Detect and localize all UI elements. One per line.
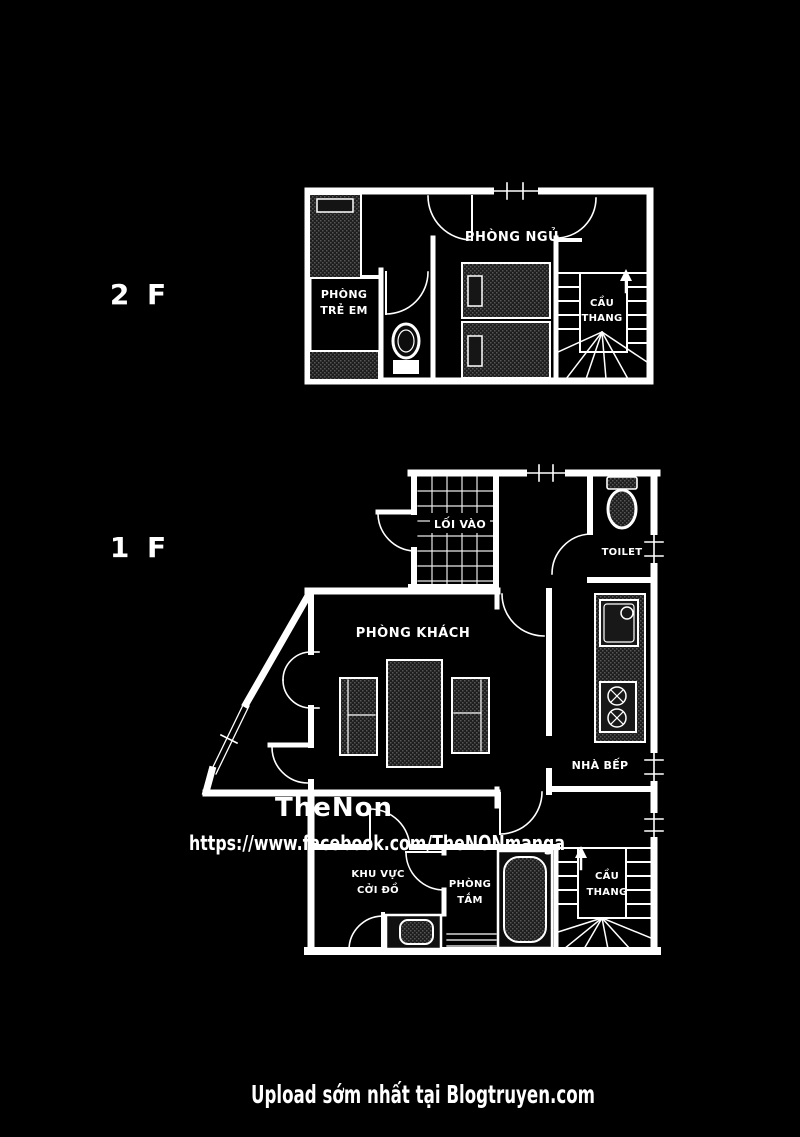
floor2-top-window-icon (494, 183, 538, 199)
room-label-living: PHÒNG KHÁCH (356, 625, 470, 641)
entrance-top-window-icon (527, 465, 565, 481)
room-label-stairs2f-2: THANG (581, 313, 622, 324)
toilet-fixture (607, 477, 637, 528)
room-label-kids-2: TRẺ EM (320, 303, 368, 317)
room-label-entrance: LỐI VÀO (434, 516, 486, 531)
room-label-changing-1: KHU VỰC (351, 869, 404, 880)
room-label-stairs2f-1: CẦU (590, 295, 614, 309)
room-label-bedroom: PHÒNG NGỦ (465, 228, 559, 245)
sofa-right (452, 678, 489, 753)
room-label-bath-1: PHÒNG (449, 877, 491, 890)
bathtub (498, 851, 552, 948)
kids-bed (309, 194, 361, 278)
room-label-kids-1: PHÒNG (321, 288, 367, 301)
bed-2 (462, 322, 550, 378)
sofa-left (340, 678, 377, 755)
kitchen-window-icon (645, 753, 663, 781)
room-label-stairs1f-1: CẦU (595, 868, 619, 882)
page-background (0, 0, 800, 1137)
room-label-stairs1f-2: THANG (586, 887, 627, 898)
manga-floorplan-page: 2 F PHÒNG TRẺ (0, 0, 800, 1137)
kitchen-sink (600, 600, 638, 646)
floor1-label: 1 F (110, 531, 170, 564)
kids-shelf (309, 351, 379, 380)
room-label-toilet: TOILET (602, 547, 643, 558)
bed-1 (462, 263, 550, 318)
living-table (387, 660, 442, 767)
toilet2f-fixture (393, 324, 419, 374)
watermark-name: TheNon (275, 793, 393, 823)
washing-machine (386, 915, 441, 949)
floor2-label: 2 F (110, 278, 170, 311)
watermark-url: https://www.facebook.com/TheNONmanga (189, 831, 565, 855)
footer-credit: Upload sớm nhất tại Blogtruyen.com (251, 1080, 595, 1109)
kitchen-stove (600, 682, 636, 732)
toilet-window-icon (645, 535, 663, 563)
hall-window-icon (645, 813, 663, 837)
floorplan-drawing: 2 F PHÒNG TRẺ (0, 0, 800, 1137)
room-label-kitchen: NHÀ BẾP (572, 757, 629, 772)
